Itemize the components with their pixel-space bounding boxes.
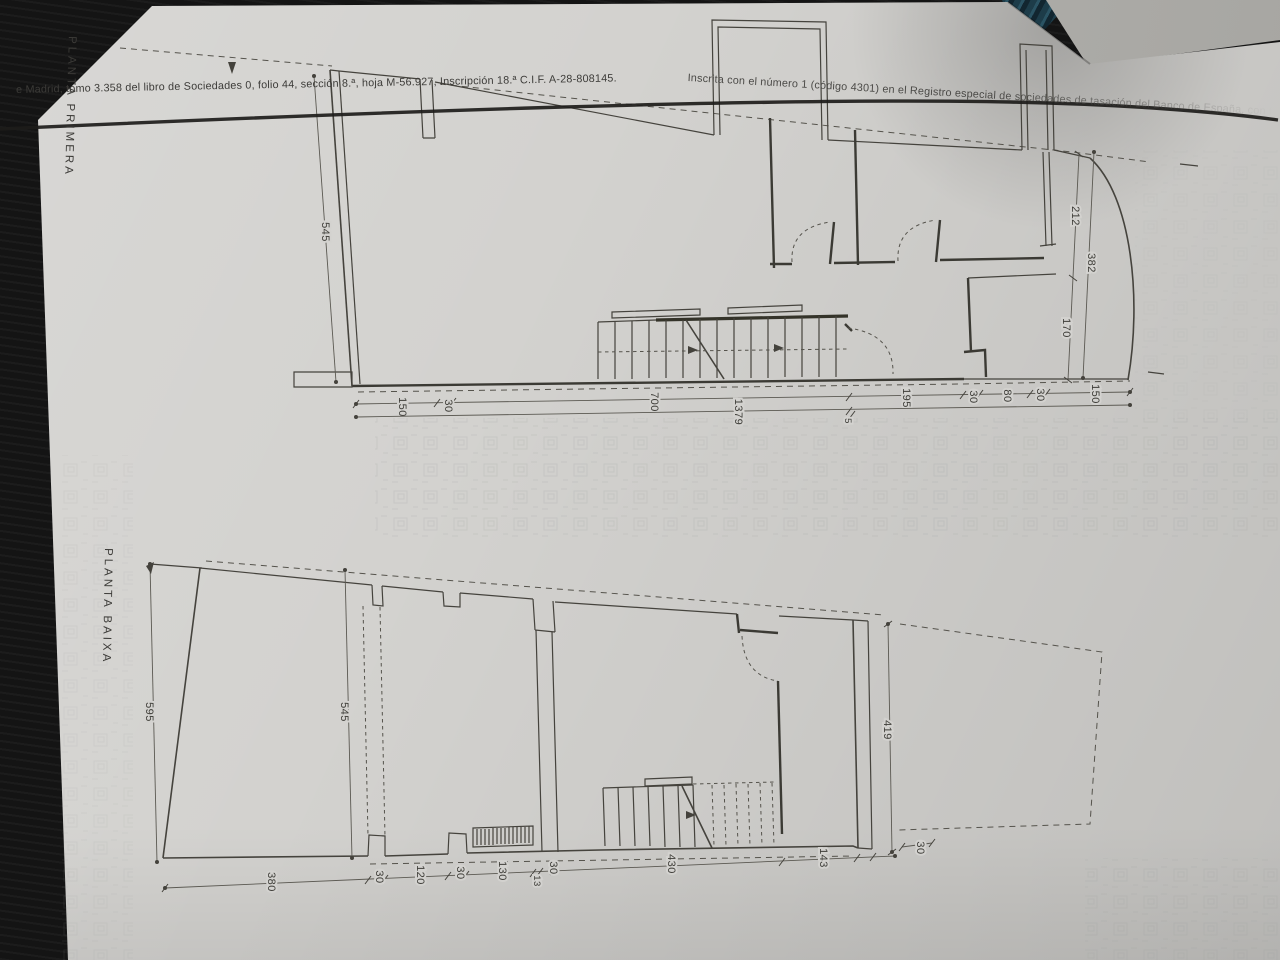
dim-label: 545: [338, 702, 350, 722]
dim-label: 30: [442, 399, 454, 412]
dim-label: 30: [547, 861, 559, 874]
dim-label: 150: [396, 397, 408, 417]
dim-595-baixa: 595: [143, 562, 202, 864]
dim-label: 150: [1089, 384, 1101, 404]
plan-linework: 545 150 30 700 195 30 80 30 150 1379 5: [0, 0, 1280, 960]
dim-label: 30: [373, 870, 385, 883]
dim-label: 195: [900, 388, 912, 408]
dim-label: 1379: [732, 399, 744, 425]
dim-label: 30: [914, 841, 926, 854]
dim-label: 419: [881, 720, 893, 740]
dim-label: 430: [665, 854, 677, 874]
dim-label: 143: [817, 848, 829, 868]
dim-label: 120: [414, 865, 426, 885]
dim-label: 80: [1001, 389, 1013, 402]
planta-baixa-title: PLANTA BAIXA: [100, 548, 114, 665]
planta-baixa-plan: 595: [143, 561, 1102, 892]
dim-419-baixa: 419: [881, 621, 896, 855]
dim-label: 380: [265, 872, 277, 892]
dim-label: 130: [496, 861, 508, 881]
dim-label: 212: [1069, 206, 1081, 226]
dim-label: 30: [1034, 388, 1046, 401]
dim-label: 30: [454, 866, 466, 879]
dim-label: 170: [1060, 318, 1072, 338]
dim-545-baixa: 545: [338, 568, 354, 860]
dim-label: 700: [648, 392, 660, 412]
dim-label: 13: [531, 875, 542, 887]
scanned-floorplan-photo: 545 150 30 700 195 30 80 30 150 1379 5: [0, 0, 1280, 960]
dim-label: 545: [319, 222, 331, 242]
dims-right-primera: 212 170 382: [1060, 150, 1097, 383]
dim-label: 30: [967, 390, 979, 403]
dim-label: 5: [842, 418, 853, 424]
dim-label: 595: [143, 702, 155, 722]
dim-label: 382: [1085, 253, 1097, 273]
